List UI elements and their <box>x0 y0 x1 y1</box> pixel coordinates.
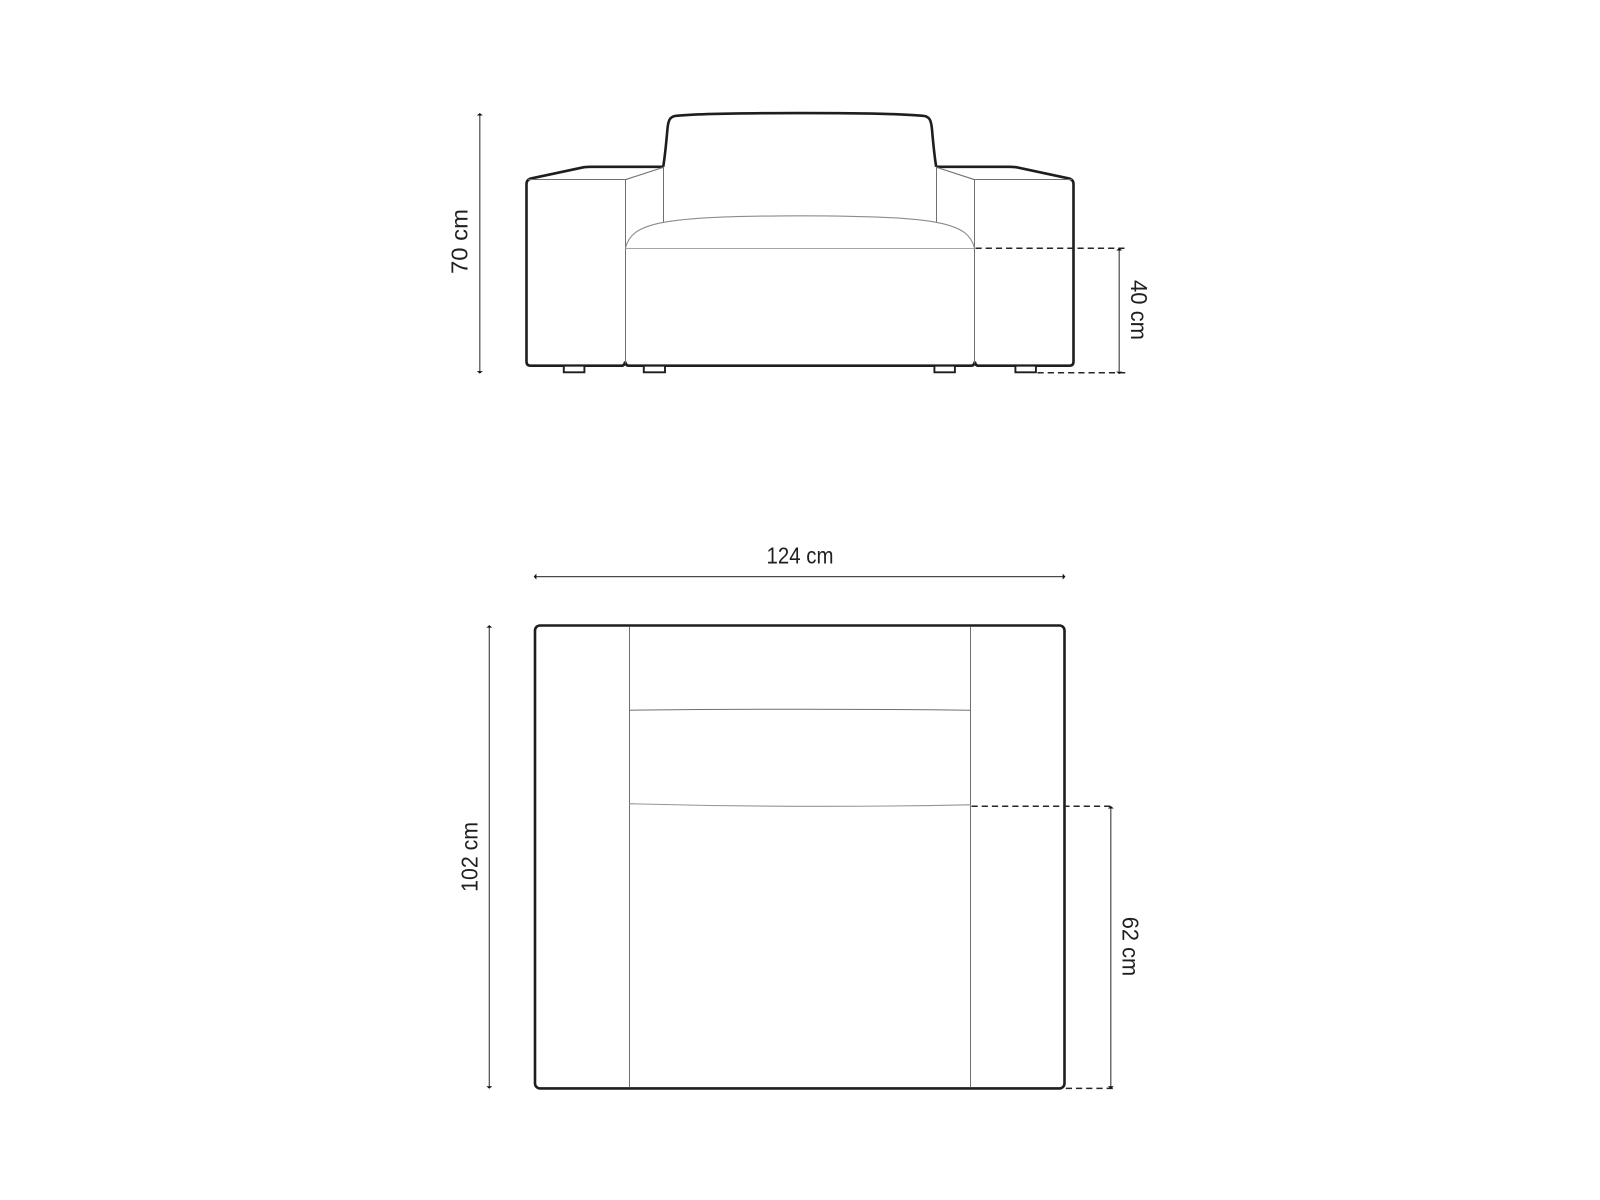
svg-text:70 cm: 70 cm <box>447 209 473 274</box>
svg-text:40 cm: 40 cm <box>1126 280 1152 340</box>
svg-text:102 cm: 102 cm <box>456 822 482 892</box>
svg-text:62 cm: 62 cm <box>1117 917 1143 977</box>
svg-text:124 cm: 124 cm <box>767 542 834 568</box>
